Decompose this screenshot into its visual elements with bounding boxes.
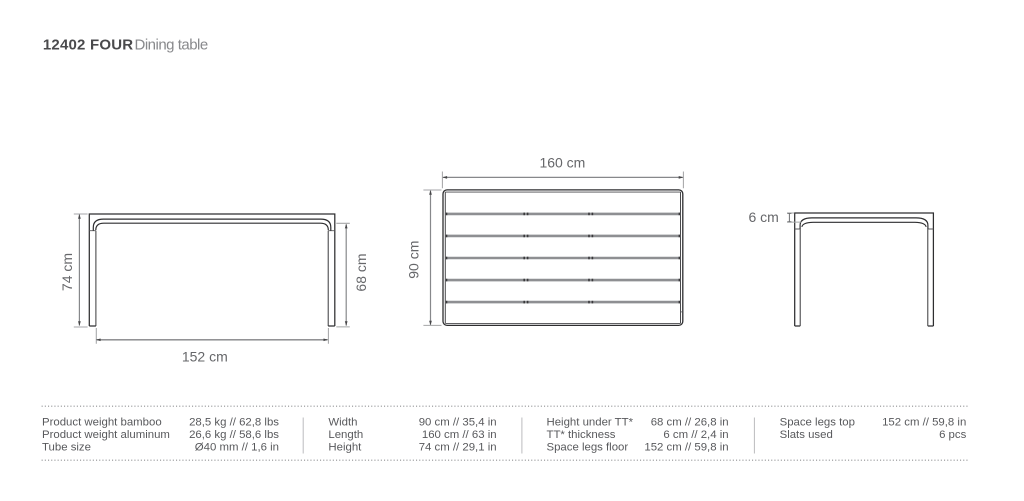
svg-text:152 cm: 152 cm xyxy=(182,349,228,365)
svg-text:Ø40 mm // 1,6 in: Ø40 mm // 1,6 in xyxy=(195,442,279,454)
svg-text:6 cm // 2,4 in: 6 cm // 2,4 in xyxy=(663,429,728,441)
svg-text:152 cm // 59,8 in: 152 cm // 59,8 in xyxy=(644,442,728,454)
svg-text:TT* thickness: TT* thickness xyxy=(547,429,616,441)
svg-text:Length: Length xyxy=(328,429,363,441)
svg-text:6 cm: 6 cm xyxy=(748,209,778,225)
svg-text:12402 FOUR: 12402 FOUR xyxy=(43,37,133,54)
svg-text:Product weight bamboo: Product weight bamboo xyxy=(42,416,162,428)
svg-text:152 cm // 59,8 in: 152 cm // 59,8 in xyxy=(882,416,966,428)
svg-text:90 cm // 35,4 in: 90 cm // 35,4 in xyxy=(419,416,497,428)
svg-text:74 cm: 74 cm xyxy=(59,253,75,291)
svg-text:160 cm: 160 cm xyxy=(539,154,585,170)
svg-text:6 pcs: 6 pcs xyxy=(939,429,967,441)
svg-text:Space legs floor: Space legs floor xyxy=(547,442,629,454)
svg-text:90 cm: 90 cm xyxy=(405,241,421,279)
svg-text:Space legs top: Space legs top xyxy=(780,416,855,428)
svg-text:Dining table: Dining table xyxy=(135,37,208,54)
svg-text:Tube size: Tube size xyxy=(42,442,91,454)
svg-text:160 cm // 63 in: 160 cm // 63 in xyxy=(422,429,497,441)
svg-text:Height under TT*: Height under TT* xyxy=(547,416,634,428)
svg-text:28,5 kg // 62,8 lbs: 28,5 kg // 62,8 lbs xyxy=(189,416,279,428)
svg-text:Product weight aluminum: Product weight aluminum xyxy=(42,429,170,441)
svg-text:68 cm // 26,8 in: 68 cm // 26,8 in xyxy=(651,416,729,428)
svg-text:Slats used: Slats used xyxy=(780,429,833,441)
svg-text:Height: Height xyxy=(328,442,362,454)
svg-text:74 cm // 29,1 in: 74 cm // 29,1 in xyxy=(419,442,497,454)
svg-text:68 cm: 68 cm xyxy=(353,253,369,291)
svg-text:26,6 kg // 58,6 lbs: 26,6 kg // 58,6 lbs xyxy=(189,429,279,441)
svg-text:Width: Width xyxy=(328,416,357,428)
